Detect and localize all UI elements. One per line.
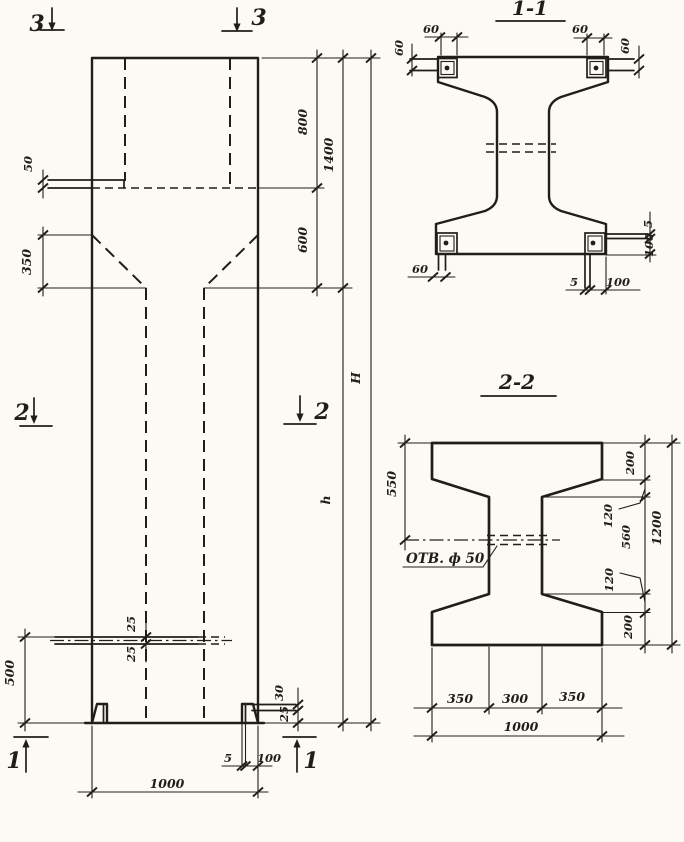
dim-5-bottom-label: 5: [570, 275, 578, 289]
ledge-plate: [48, 180, 124, 188]
dim-1400-label: 1400: [321, 137, 336, 172]
dim-H-label: H: [348, 371, 363, 385]
section-marks: 3 3 2 2 1 1: [6, 5, 329, 774]
column-outline: [48, 58, 296, 723]
dim-120-bottom-label: 120: [602, 568, 616, 592]
section-mark-3-right: 3: [251, 5, 266, 31]
dim-h-label: h: [318, 495, 333, 504]
dim-100-plate-label: 100: [257, 751, 281, 765]
dim-30-label: 30: [272, 685, 286, 701]
section-mark-1-right: 1: [303, 748, 318, 774]
left-foot: [92, 704, 107, 723]
dim-1000-label: 1000: [150, 776, 185, 791]
hole-label: ОТВ. ф 50: [406, 551, 485, 567]
dim-25-foot-label: 25: [277, 706, 291, 723]
dim-200-top-label: 200: [623, 451, 637, 476]
dim-500-label: 500: [2, 660, 17, 686]
section-mark-3-left: 3: [29, 11, 44, 37]
dim-25-lower-label: 25: [124, 646, 138, 663]
dim-5-side-label: 5: [641, 220, 655, 228]
drawing-sheet: 800 600 1400 h H 50 350 500 25 25 30 25 …: [0, 0, 684, 842]
dim-350-right-label: 350: [559, 689, 585, 704]
dim-120-top-label: 120: [601, 504, 615, 528]
hidden-edges: [50, 58, 258, 718]
dim-800-label: 800: [295, 109, 310, 135]
dim-560-label: 560: [619, 525, 633, 549]
dim-550-label: 550: [384, 471, 399, 497]
dim-60-bottom-label: 60: [412, 262, 428, 276]
section-2-2-title: 2-2: [498, 370, 535, 394]
section-mark-2-right: 2: [313, 399, 329, 425]
anchor-dot: [444, 241, 449, 246]
dim-25-upper-label: 25: [124, 616, 138, 633]
anchor-dot: [591, 241, 596, 246]
dim-60-right-top-label: 60: [572, 22, 588, 36]
dim-600-label: 600: [295, 227, 310, 253]
dim-300-label: 300: [502, 691, 528, 706]
dim-1000-sec-label: 1000: [504, 719, 539, 734]
section-2-2-outline: [405, 443, 602, 645]
section-1-1-view: 1-1: [392, 0, 656, 295]
dim-50-label: 50: [21, 156, 35, 172]
section-1-1-outline: [436, 57, 608, 254]
dim-100-side-label: 100: [642, 233, 656, 257]
hole-callout: ОТВ. ф 50: [403, 546, 497, 567]
dim-100-bottom-label: 100: [606, 275, 630, 289]
dim-5-plate-label: 5: [224, 751, 232, 765]
dim-1200-label: 1200: [649, 510, 664, 545]
anchor-dot: [445, 66, 450, 71]
section-mark-2-left: 2: [13, 400, 29, 426]
right-foot: [242, 704, 258, 723]
dim-350-label: 350: [19, 249, 34, 275]
anchor-dot: [594, 66, 599, 71]
section-1-1-title: 1-1: [512, 0, 548, 20]
dim-350-left-label: 350: [447, 691, 473, 706]
column-drawing: 800 600 1400 h H 50 350 500 25 25 30 25 …: [0, 0, 684, 842]
elevation-view: 800 600 1400 h H 50 350 500 25 25 30 25 …: [2, 5, 380, 798]
section-mark-1-left: 1: [6, 748, 21, 774]
dim-200-bottom-label: 200: [621, 615, 635, 640]
dim-60-left-top-label: 60: [423, 22, 439, 36]
section-2-2-view: 2-2 ОТВ. ф 50 550 200: [384, 370, 680, 742]
dim-60-right-rot-label: 60: [618, 38, 632, 54]
dim-60-left-rot-label: 60: [392, 40, 406, 56]
